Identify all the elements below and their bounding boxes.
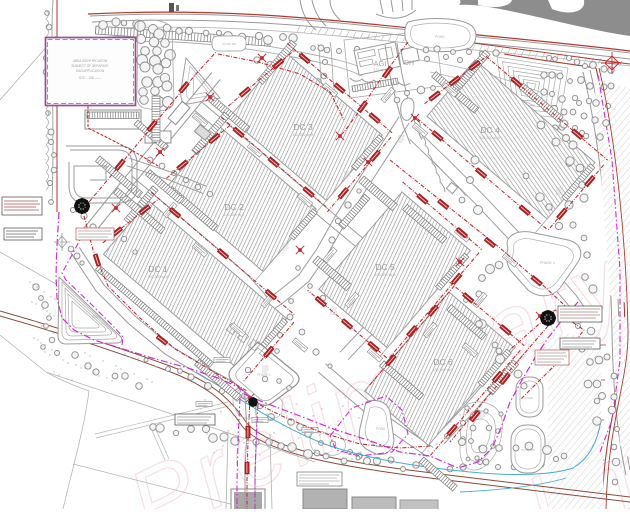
svg-text:POND: POND [435,35,445,39]
svg-text:GAS APPLICATION: GAS APPLICATION [76,69,105,73]
svg-text:DC 2: DC 2 [224,202,244,212]
svg-text:DC 4: DC 4 [480,125,500,135]
svg-text:DC 5: DC 5 [375,262,395,272]
svg-text:102,500 sq ft: 102,500 sq ft [293,133,314,137]
svg-text:DC 3: DC 3 [293,122,313,132]
svg-text:102,500 sq ft: 102,500 sq ft [480,136,501,140]
svg-text:102,500 sq ft: 102,500 sq ft [375,273,396,277]
svg-text:POND: POND [525,396,535,400]
svg-text:DC 6: DC 6 [433,357,453,367]
svg-text:DC 1: DC 1 [148,264,168,274]
svg-text:PHASE 2: PHASE 2 [540,261,555,265]
svg-text:POND 5B: POND 5B [222,42,235,46]
svg-text:SUBJECT OF SEPARATE: SUBJECT OF SEPARATE [71,64,108,68]
svg-text:STC - 135 ——: STC - 135 —— [79,76,102,80]
svg-text:102,500 sq ft: 102,500 sq ft [224,213,245,217]
svg-text:POND: POND [376,427,386,431]
svg-text:470 sq m: 470 sq m [373,68,386,72]
svg-text:AGI: AGI [374,59,387,68]
svg-text:DH: DH [404,60,414,67]
svg-text:102,500 sq ft: 102,500 sq ft [148,275,169,279]
svg-text:AREA IDENTIFICATION: AREA IDENTIFICATION [73,59,108,63]
svg-text:102,500 sq ft: 102,500 sq ft [433,368,454,372]
